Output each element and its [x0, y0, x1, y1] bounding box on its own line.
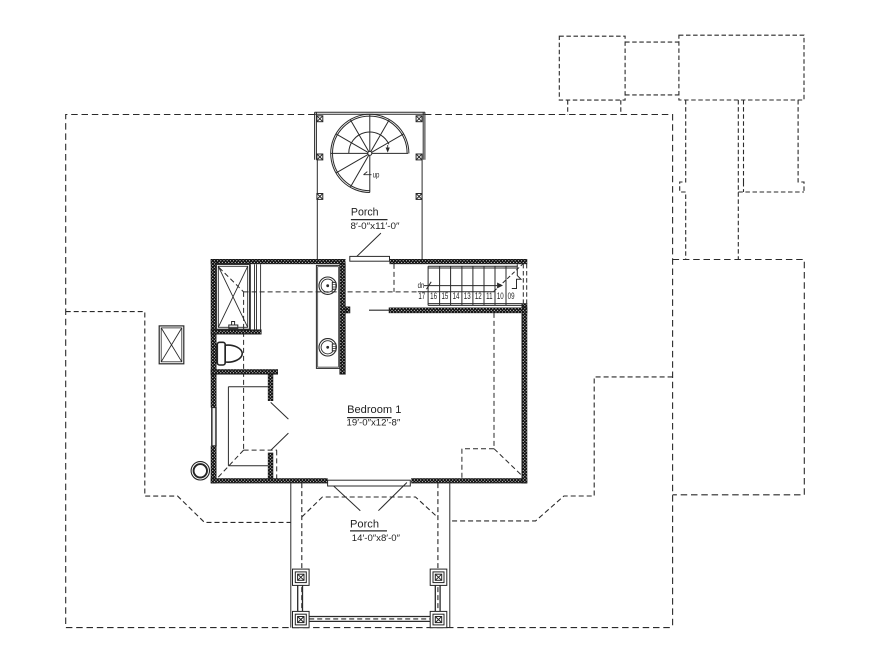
svg-text:14: 14 [453, 291, 460, 301]
svg-text:16: 16 [430, 291, 437, 301]
svg-text:Porch: Porch [351, 207, 379, 219]
svg-text:19′-0″x12′-8″: 19′-0″x12′-8″ [347, 418, 402, 428]
svg-text:10: 10 [497, 291, 504, 301]
svg-text:8′-0″x11′-0″: 8′-0″x11′-0″ [351, 221, 401, 231]
svg-text:13: 13 [464, 291, 471, 301]
svg-text:Bedroom 1: Bedroom 1 [347, 404, 401, 416]
svg-text:12: 12 [475, 291, 482, 301]
svg-text:15: 15 [441, 291, 448, 301]
svg-text:09: 09 [508, 291, 515, 301]
svg-text:11: 11 [486, 291, 492, 301]
svg-text:17: 17 [418, 291, 425, 301]
svg-text:dn: dn [418, 281, 425, 290]
svg-text:14′-0″x8′-0″: 14′-0″x8′-0″ [352, 533, 401, 543]
svg-text:up: up [373, 171, 380, 180]
svg-text:Porch: Porch [350, 519, 379, 531]
